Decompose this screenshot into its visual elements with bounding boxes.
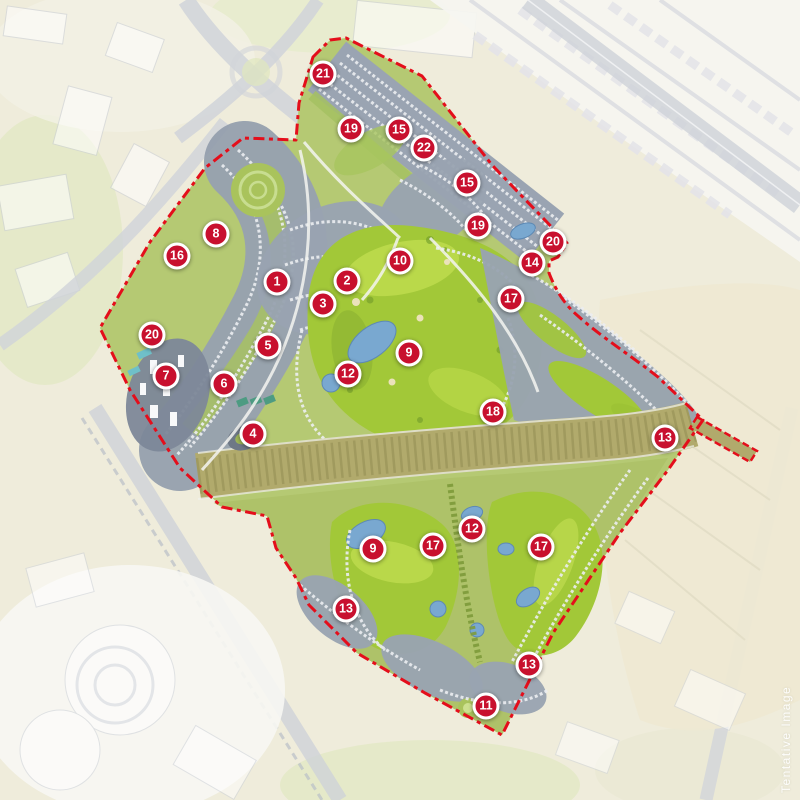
- map-marker-10[interactable]: 10: [387, 248, 414, 275]
- map-marker-19[interactable]: 19: [338, 116, 365, 143]
- map-marker-6[interactable]: 6: [211, 371, 238, 398]
- map-marker-8[interactable]: 8: [203, 221, 230, 248]
- map-marker-5[interactable]: 5: [255, 333, 282, 360]
- map-marker-17[interactable]: 17: [498, 286, 525, 313]
- map-marker-13[interactable]: 13: [516, 652, 543, 679]
- map-marker-16[interactable]: 16: [164, 243, 191, 270]
- map-marker-21[interactable]: 21: [310, 61, 337, 88]
- masterplan-screenshot: 1234567899101112121313131415151617171718…: [0, 0, 800, 800]
- map-marker-15[interactable]: 15: [454, 170, 481, 197]
- map-marker-3[interactable]: 3: [310, 291, 337, 318]
- map-marker-17[interactable]: 17: [420, 533, 447, 560]
- map-marker-20[interactable]: 20: [139, 322, 166, 349]
- map-marker-14[interactable]: 14: [519, 250, 546, 277]
- map-marker-20[interactable]: 20: [540, 229, 567, 256]
- map-marker-18[interactable]: 18: [480, 399, 507, 426]
- map-marker-22[interactable]: 22: [411, 135, 438, 162]
- map-marker-12[interactable]: 12: [335, 361, 362, 388]
- map-marker-13[interactable]: 13: [333, 596, 360, 623]
- map-marker-15[interactable]: 15: [386, 117, 413, 144]
- map-marker-2[interactable]: 2: [334, 268, 361, 295]
- map-marker-11[interactable]: 11: [473, 693, 500, 720]
- watermark-text: Tentative Image: [779, 686, 793, 793]
- map-marker-9[interactable]: 9: [360, 536, 387, 563]
- map-marker-1[interactable]: 1: [264, 269, 291, 296]
- map-marker-9[interactable]: 9: [396, 340, 423, 367]
- map-marker-12[interactable]: 12: [459, 516, 486, 543]
- markers-layer: 1234567899101112121313131415151617171718…: [0, 0, 800, 800]
- map-marker-19[interactable]: 19: [465, 213, 492, 240]
- map-marker-4[interactable]: 4: [240, 421, 267, 448]
- map-marker-7[interactable]: 7: [153, 363, 180, 390]
- map-marker-13[interactable]: 13: [652, 425, 679, 452]
- map-marker-17[interactable]: 17: [528, 534, 555, 561]
